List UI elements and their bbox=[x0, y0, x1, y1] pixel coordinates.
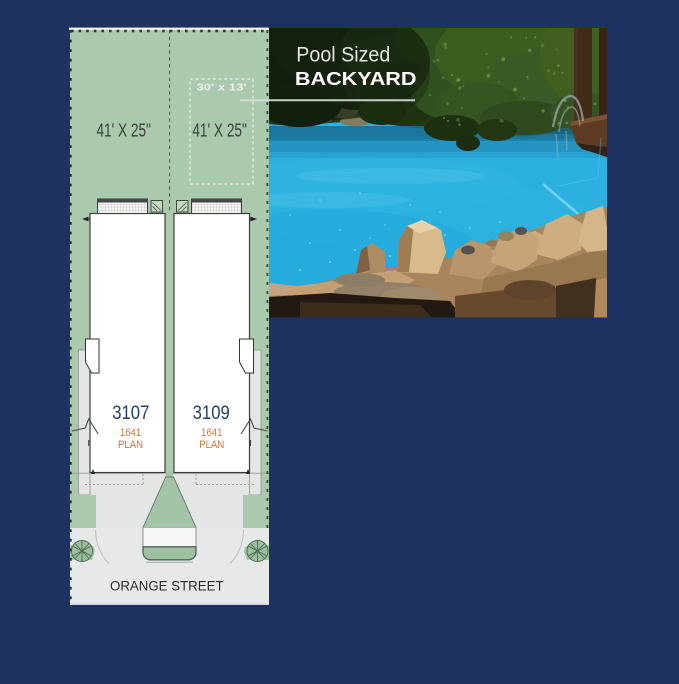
svg-text:41' X 25": 41' X 25" bbox=[192, 121, 247, 141]
svg-text:30' x 13': 30' x 13' bbox=[197, 82, 247, 93]
svg-text:3109: 3109 bbox=[193, 402, 230, 424]
svg-text:PLAN: PLAN bbox=[199, 439, 224, 451]
svg-text:1641: 1641 bbox=[201, 427, 222, 439]
svg-text:BACKYARD: BACKYARD bbox=[295, 68, 417, 89]
svg-text:41' X 25": 41' X 25" bbox=[96, 121, 151, 141]
svg-text:1641: 1641 bbox=[120, 427, 141, 439]
svg-text:PLAN: PLAN bbox=[118, 439, 143, 451]
svg-text:3107: 3107 bbox=[112, 402, 149, 424]
svg-text:Pool Sized: Pool Sized bbox=[296, 43, 390, 67]
svg-text:ORANGE STREET: ORANGE STREET bbox=[110, 578, 224, 593]
